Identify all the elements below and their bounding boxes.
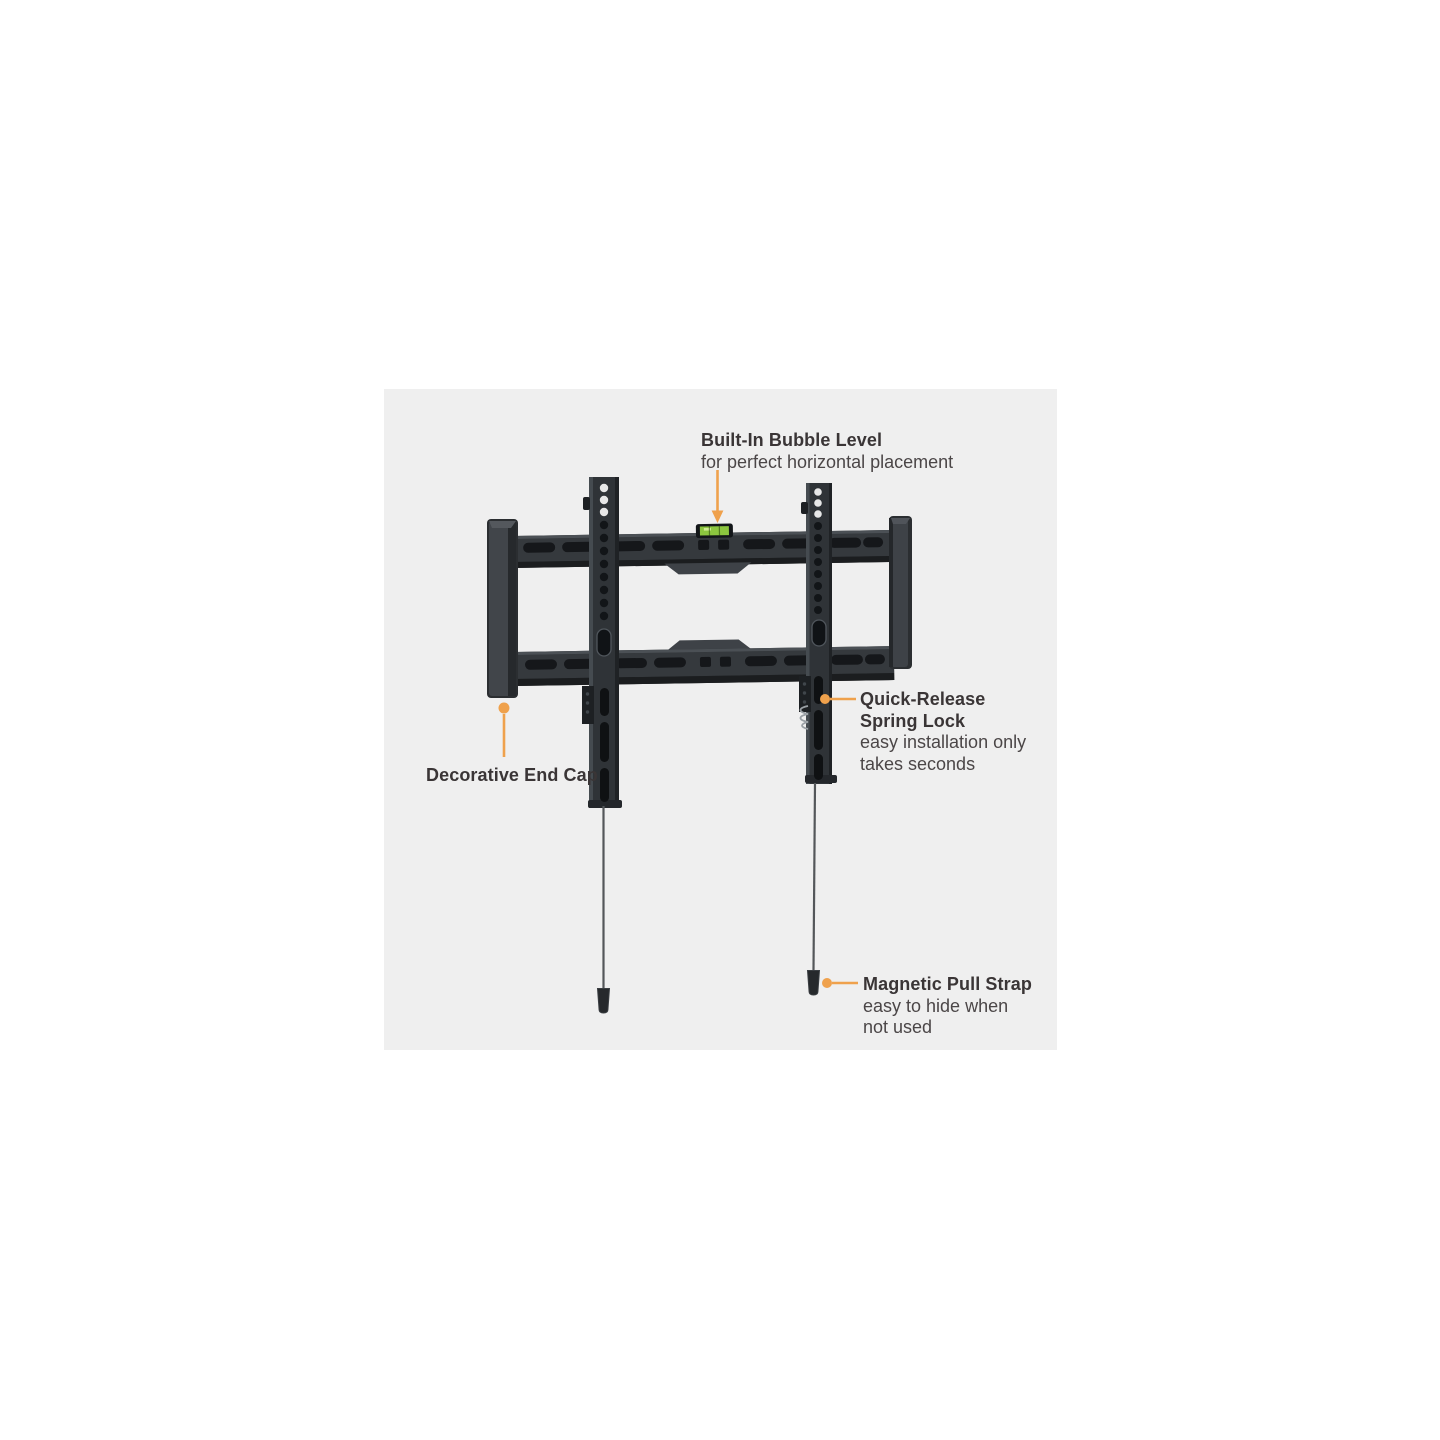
- callout-pointer-pull-strap: [822, 978, 858, 988]
- mount-frame: [513, 521, 894, 686]
- pull-strap-right: [808, 783, 820, 995]
- callout-spring-lock: Quick-Release Spring Lock easy installat…: [860, 689, 1060, 775]
- pull-strap-right-handle: [808, 971, 820, 996]
- callout-pointer-end-cap: [499, 703, 510, 758]
- vesa-rail-right: [799, 483, 837, 784]
- callout-bubble-level: Built-In Bubble Level for perfect horizo…: [701, 430, 953, 473]
- callout-end-cap-title: Decorative End Cap: [426, 765, 598, 787]
- callout-pull-strap: Magnetic Pull Strap easy to hide when no…: [863, 974, 1032, 1039]
- vesa-rail-left: [582, 477, 622, 808]
- callout-bubble-level-description: for perfect horizontal placement: [701, 452, 953, 474]
- bubble-level: [696, 524, 733, 539]
- rail-center-tab-top: [664, 562, 751, 574]
- callout-pull-strap-title: Magnetic Pull Strap: [863, 974, 1032, 996]
- callout-end-cap: Decorative End Cap: [426, 765, 598, 787]
- callout-pointer-bubble-level: [712, 470, 724, 523]
- vesa-slot-pattern-left: [600, 688, 609, 802]
- quick-release-button-right: [812, 620, 826, 646]
- quick-release-button-left: [597, 629, 611, 656]
- vesa-slot-pattern-right: [814, 676, 823, 780]
- end-cap-right: [889, 516, 912, 669]
- callout-bubble-level-title: Built-In Bubble Level: [701, 430, 953, 452]
- callout-spring-lock-description: easy installation only takes seconds: [860, 732, 1060, 775]
- tv-wall-mount-illustration: [0, 0, 1440, 1440]
- callout-spring-lock-title: Quick-Release Spring Lock: [860, 689, 1028, 732]
- pull-strap-left-handle: [598, 989, 610, 1014]
- pull-strap-left: [598, 806, 610, 1013]
- end-cap-left: [487, 519, 518, 698]
- callout-pointer-spring-lock: [820, 694, 856, 704]
- wall-rail-bottom: [515, 637, 895, 686]
- callout-pull-strap-description: easy to hide when not used: [863, 996, 1021, 1039]
